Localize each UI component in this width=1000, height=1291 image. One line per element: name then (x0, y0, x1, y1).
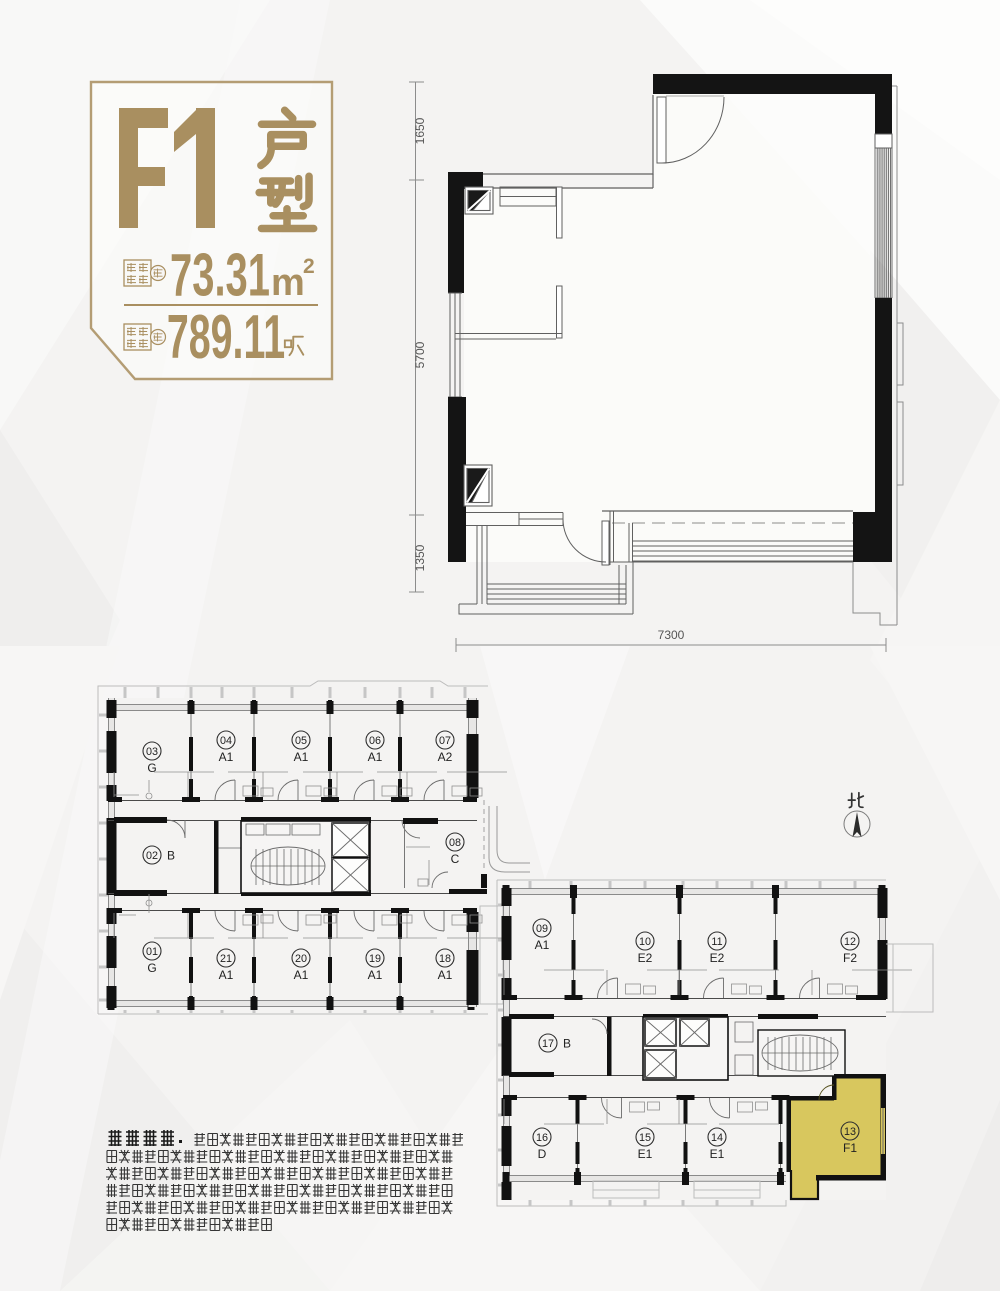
svg-text:A1: A1 (219, 750, 234, 764)
svg-text:B: B (563, 1036, 571, 1050)
svg-text:E2: E2 (710, 951, 725, 965)
svg-text:C: C (451, 852, 460, 866)
svg-text:m: m (271, 262, 305, 304)
svg-text:06: 06 (369, 735, 381, 747)
svg-text:19: 19 (369, 953, 381, 965)
svg-text:G: G (147, 761, 156, 775)
svg-text:5700: 5700 (413, 341, 427, 368)
svg-text:03: 03 (146, 746, 158, 758)
svg-text:11: 11 (711, 936, 722, 948)
svg-text:1650: 1650 (413, 117, 427, 144)
svg-text:E1: E1 (710, 1147, 725, 1161)
svg-text:14: 14 (711, 1132, 723, 1144)
svg-text:16: 16 (536, 1132, 548, 1144)
svg-text:01: 01 (146, 946, 158, 958)
svg-text:10: 10 (639, 936, 651, 948)
svg-text:73.31: 73.31 (170, 241, 270, 308)
svg-text:A1: A1 (294, 750, 309, 764)
svg-text:A1: A1 (535, 938, 550, 952)
svg-text:17: 17 (542, 1038, 554, 1050)
svg-text:A1: A1 (368, 750, 383, 764)
svg-text:D: D (538, 1147, 547, 1161)
svg-text:21: 21 (220, 953, 232, 965)
svg-text:08: 08 (449, 837, 461, 849)
svg-text:02: 02 (146, 850, 158, 862)
svg-text:F1: F1 (843, 1141, 857, 1155)
svg-text:G: G (147, 961, 156, 975)
svg-text:15: 15 (639, 1132, 651, 1144)
svg-text:13: 13 (844, 1126, 856, 1138)
svg-text:20: 20 (295, 953, 307, 965)
svg-text:7300: 7300 (658, 628, 685, 642)
svg-text:A1: A1 (294, 968, 309, 982)
svg-text:789.11: 789.11 (167, 303, 285, 372)
svg-text:A1: A1 (438, 968, 453, 982)
svg-text:A1: A1 (219, 968, 234, 982)
svg-text:E2: E2 (638, 951, 653, 965)
svg-text:A1: A1 (368, 968, 383, 982)
svg-text:B: B (167, 848, 175, 862)
svg-text:12: 12 (844, 936, 856, 948)
svg-text:04: 04 (220, 735, 232, 747)
svg-text:A2: A2 (438, 750, 453, 764)
svg-text:07: 07 (439, 735, 451, 747)
svg-text:18: 18 (439, 953, 451, 965)
svg-text:F2: F2 (843, 951, 857, 965)
svg-text:05: 05 (295, 735, 307, 747)
svg-text:E1: E1 (638, 1147, 653, 1161)
svg-text:2: 2 (303, 255, 315, 278)
svg-text:09: 09 (536, 923, 548, 935)
svg-text:1350: 1350 (413, 544, 427, 571)
